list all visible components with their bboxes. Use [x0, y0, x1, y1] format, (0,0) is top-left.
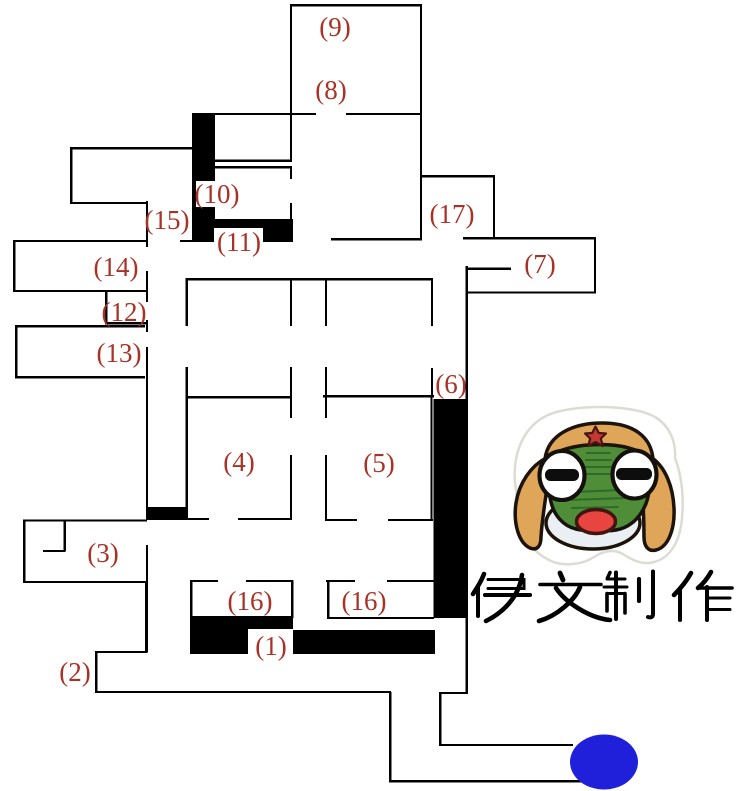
svg-text:(1): (1): [255, 631, 286, 661]
svg-text:(16): (16): [342, 586, 387, 616]
svg-text:(3): (3): [87, 538, 118, 568]
svg-text:(13): (13): [97, 338, 142, 368]
svg-text:(16): (16): [228, 586, 273, 616]
svg-text:(17): (17): [430, 199, 475, 229]
svg-text:(2): (2): [59, 657, 90, 687]
svg-text:(8): (8): [315, 75, 346, 105]
svg-text:(12): (12): [102, 297, 147, 327]
svg-text:(5): (5): [363, 448, 394, 478]
svg-text:(15): (15): [145, 205, 190, 235]
svg-text:(9): (9): [319, 12, 350, 42]
svg-text:(4): (4): [223, 447, 254, 477]
svg-text:(10): (10): [195, 179, 240, 209]
svg-text:(14): (14): [94, 252, 139, 282]
svg-text:(7): (7): [524, 249, 555, 279]
svg-text:(11): (11): [217, 227, 261, 257]
svg-text:(6): (6): [435, 369, 466, 399]
